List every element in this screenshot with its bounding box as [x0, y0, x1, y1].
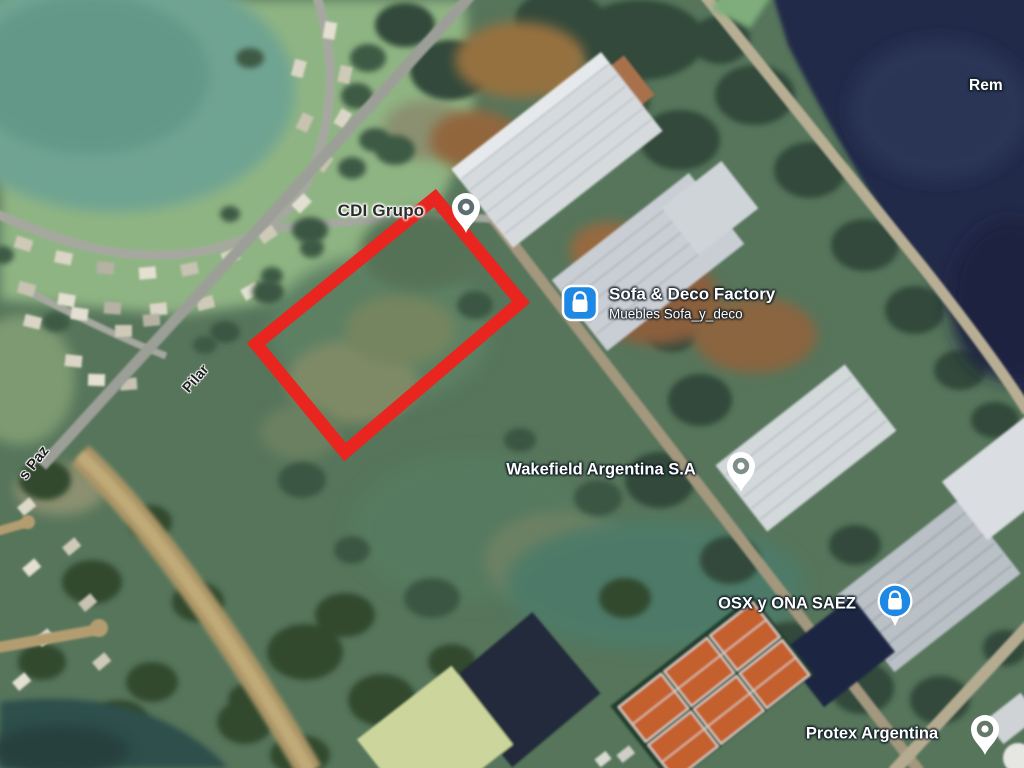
poi-label-cdi-grupo[interactable]: CDI Grupo	[338, 201, 425, 221]
poi-label-protex[interactable]: Protex Argentina	[806, 725, 938, 744]
terrain-layer	[0, 0, 1024, 768]
poi-label-osx-ona-saez[interactable]: OSX y ONA SAEZ	[718, 595, 856, 614]
poi-title: Sofa & Deco Factory	[609, 285, 775, 305]
protex-place-pin[interactable]	[969, 714, 1001, 761]
wakefield-place-pin[interactable]	[725, 451, 757, 498]
sofa-deco-shopping-bag-icon[interactable]	[561, 284, 599, 327]
osx-shopping-bag-pin[interactable]	[875, 582, 915, 633]
cdi-grupo-place-pin[interactable]	[450, 192, 482, 239]
poi-label-rem-truncated[interactable]: Rem	[969, 77, 1003, 95]
satellite-map-canvas[interactable]: Pilar s Paz CDI Grupo Sofa & Deco Factor…	[0, 0, 1024, 768]
poi-label-wakefield[interactable]: Wakefield Argentina S.A	[506, 461, 695, 480]
poi-label-sofa-deco[interactable]: Sofa & Deco Factory Muebles Sofa_y_deco	[609, 285, 775, 322]
poi-subtitle: Muebles Sofa_y_deco	[609, 307, 775, 322]
